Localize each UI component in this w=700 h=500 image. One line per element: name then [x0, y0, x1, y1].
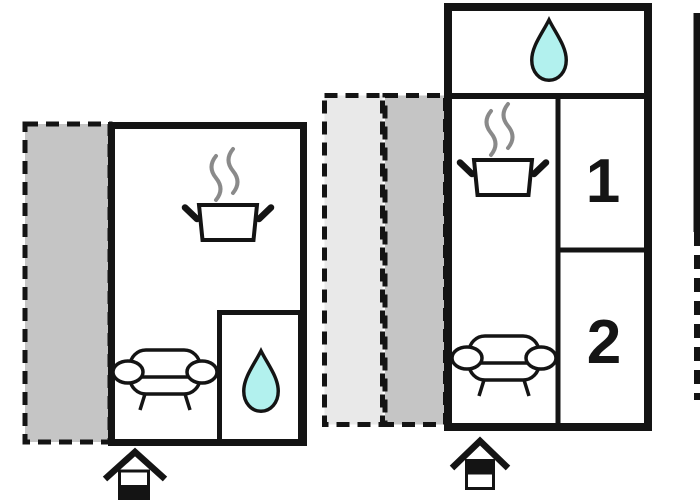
house-level-icon-upper	[452, 441, 508, 489]
terrace-light-right-unit	[325, 96, 383, 425]
floor-plan-canvas: 1 2	[0, 0, 700, 500]
room-2-label: 2	[587, 308, 621, 377]
unit-left	[25, 124, 304, 500]
house-level-icon-ground	[105, 452, 165, 500]
floor-plan-svg: 1 2	[0, 0, 700, 500]
unit-right: 1 2	[325, 7, 649, 489]
terrace-dark-right-unit	[385, 96, 446, 425]
room-1-label: 1	[586, 147, 620, 216]
terrace-left-unit	[25, 124, 110, 442]
